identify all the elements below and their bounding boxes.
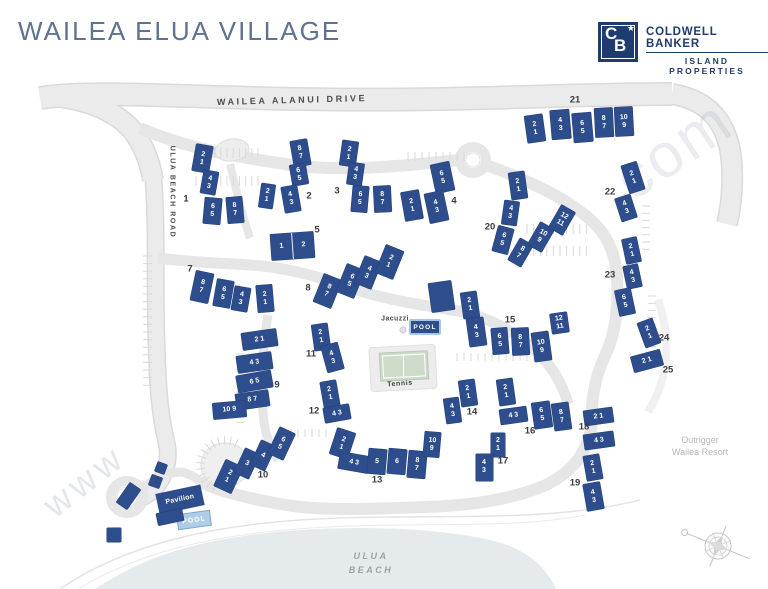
building: 65	[351, 185, 369, 212]
building: 21	[621, 161, 645, 194]
cluster-number: 12	[309, 406, 320, 417]
unit-number: 10	[620, 113, 628, 121]
unit-number: 7	[414, 464, 419, 472]
unit-number: 1	[338, 442, 344, 451]
unit-number: 1	[468, 305, 473, 313]
cluster-number: 25	[663, 365, 674, 376]
road-label-ulua-beach: ULUA BEACH ROAD	[169, 146, 176, 239]
building: 21	[508, 171, 528, 200]
unit-number: 7	[233, 210, 238, 218]
building: 87	[226, 196, 244, 223]
building: 21	[524, 113, 546, 142]
building	[107, 528, 121, 542]
building: 21	[491, 433, 505, 457]
unit-number: 5	[540, 415, 545, 423]
unit-number: 5	[375, 457, 380, 465]
building: 65	[614, 288, 635, 317]
unit-number: 1	[591, 467, 596, 475]
building: 21	[191, 143, 212, 173]
unit-number: 4	[482, 459, 486, 467]
building: 21	[401, 189, 424, 221]
unit-number: 4 3	[508, 410, 519, 419]
unit-number: 1	[384, 261, 391, 270]
map-canvas: WAILEA ALANUI DRIVE ULUA BEACH ROAD Jacu…	[0, 0, 768, 589]
unit-number: 5	[220, 293, 225, 301]
building: 43	[466, 317, 487, 347]
building: 4 3	[338, 451, 370, 473]
cluster-number: 13	[372, 475, 383, 486]
building: 65	[267, 426, 295, 459]
cluster-number: 16	[525, 426, 536, 437]
unit-number: 2	[496, 437, 500, 445]
unit-number: 3	[591, 496, 596, 504]
cluster-number: 15	[505, 315, 516, 326]
building: 109	[614, 106, 633, 136]
unit-number: 8	[415, 456, 420, 464]
jacuzzi-label: Jacuzzi	[381, 316, 409, 323]
unit-number: 1	[199, 158, 204, 166]
unit-number: 5	[345, 280, 352, 289]
cluster-number: 21	[570, 95, 581, 106]
unit-number: 4 3	[332, 408, 343, 417]
unit-number: 3	[630, 276, 635, 284]
unit-number: 8	[380, 191, 384, 199]
unit-number: 8 7	[247, 395, 258, 404]
building: 43	[320, 342, 343, 372]
unit-number: 6	[221, 285, 226, 293]
cluster-number: 4	[451, 196, 456, 207]
unit-number: 5	[209, 211, 214, 219]
unit-number: 5	[499, 239, 505, 248]
building: 43	[582, 481, 603, 511]
building: 21	[583, 453, 603, 480]
neighbor-resort-label: Outrigger Wailea Resort	[672, 434, 728, 458]
building: 109	[531, 330, 552, 361]
unit-number: 2 1	[593, 411, 604, 420]
unit-number: 7	[298, 153, 303, 161]
unit-number: 1	[647, 332, 653, 341]
unit-number: 8	[602, 114, 606, 122]
building: 43	[476, 454, 493, 481]
unit-number: 10	[428, 436, 436, 444]
unit-number: 4	[207, 174, 212, 182]
tennis-label: Tennis	[387, 380, 413, 389]
cluster-number: 17	[498, 456, 509, 467]
unit-number: 11	[555, 322, 563, 331]
cluster-number: 10	[258, 470, 269, 481]
building: 87	[373, 186, 391, 213]
building: 1211	[549, 312, 569, 334]
building: 87	[190, 270, 214, 303]
unit-number: 7	[322, 290, 329, 299]
cluster-number: 7	[187, 264, 192, 275]
beach-name: ULUA BEACH	[349, 549, 394, 578]
unit-number: 9	[622, 121, 626, 129]
cluster-number: 5	[314, 225, 319, 236]
unit-number: 4 3	[249, 357, 260, 366]
unit-number: 1	[629, 250, 634, 258]
unit-number: 5	[276, 442, 283, 451]
cluster-number: 23	[605, 270, 616, 281]
cluster-number: 2	[306, 191, 311, 202]
unit-number: 1	[270, 233, 293, 260]
unit-number: 1	[263, 298, 268, 306]
unit-number: 6	[296, 166, 301, 174]
unit-number: 3	[558, 124, 563, 132]
building: 21	[256, 284, 274, 312]
unit-number: 3	[624, 207, 630, 216]
unit-number: 1	[319, 337, 324, 345]
building: 21	[621, 236, 641, 264]
unit-number: 4	[260, 451, 267, 460]
site-map-page: www .com WAILEA ELUA VILLAGE C B ★ COLDW…	[0, 0, 768, 589]
unit-number: 8	[518, 333, 522, 341]
building: 65	[491, 327, 509, 354]
unit-number: 3	[482, 467, 486, 475]
cluster-number: 22	[605, 187, 616, 198]
unit-number: 6	[579, 119, 584, 127]
unit-number: 1	[496, 445, 500, 453]
building: 87	[594, 107, 613, 137]
building: 43	[549, 109, 570, 140]
building: 109	[423, 431, 441, 457]
unit-number: 1	[533, 128, 538, 136]
unit-number: 3	[450, 410, 455, 418]
cluster-number: 11	[306, 349, 316, 360]
neighbor-line1: Outrigger	[672, 434, 728, 446]
unit-number: 9	[539, 346, 544, 354]
building: 21	[320, 380, 340, 408]
unit-number: 2	[532, 120, 537, 128]
beach-name-line1: ULUA	[349, 549, 394, 563]
cluster-number: 20	[485, 222, 496, 233]
unit-number: 2	[590, 459, 595, 467]
unit-number: 1	[264, 196, 269, 204]
unit-number: 5	[580, 127, 585, 135]
road-label-wailea-alanui: WAILEA ALANUI DRIVE	[217, 93, 367, 107]
building: 65	[202, 197, 221, 224]
main-pool-label: POOL	[409, 319, 441, 335]
cluster-number: 18	[579, 422, 590, 433]
building: 5	[367, 448, 387, 474]
unit-number: 9	[535, 236, 542, 245]
unit-number: 9	[429, 444, 434, 452]
unit-number: 5	[297, 174, 302, 182]
building: 10 9	[212, 401, 246, 420]
building: 43	[615, 194, 638, 222]
building: 65	[430, 161, 455, 193]
unit-number: 6	[395, 457, 400, 465]
building: 21	[460, 291, 479, 319]
unit-number: 7	[518, 341, 522, 349]
unit-number: 1	[516, 185, 521, 193]
cluster-number: 1	[183, 194, 188, 205]
unit-number: 4	[628, 268, 633, 276]
unit-number: 10	[536, 338, 545, 347]
building: 43	[424, 190, 449, 223]
unit-number: 1	[346, 153, 351, 161]
unit-number: 10 9	[222, 405, 236, 414]
unit-number: 2	[515, 177, 520, 185]
building	[428, 280, 455, 312]
unit-number: 4	[590, 488, 595, 496]
building: 2 1	[630, 349, 663, 372]
beach-name-line2: BEACH	[349, 563, 394, 577]
unit-number: 5	[498, 341, 503, 349]
building: 43	[501, 200, 519, 226]
unit-number: 3	[238, 299, 243, 307]
building: 12	[270, 232, 315, 261]
building: 87	[551, 401, 572, 430]
unit-number: 8	[558, 408, 563, 416]
unit-number: 1	[631, 176, 637, 185]
unit-number: 2	[347, 145, 352, 153]
building: 43	[443, 397, 461, 424]
unit-number: 4 3	[349, 457, 360, 466]
unit-number: 3	[330, 356, 336, 365]
building: 65	[289, 162, 308, 185]
building: 21	[458, 379, 477, 407]
unit-number: 1	[223, 475, 230, 484]
unit-number: 2	[262, 290, 267, 298]
building: 21	[637, 318, 661, 348]
building	[148, 474, 162, 488]
building: 6	[387, 448, 407, 474]
building: 43	[200, 169, 219, 194]
unit-number: 7	[198, 287, 203, 295]
unit-number: 3	[352, 174, 357, 182]
unit-number: 6	[438, 169, 443, 177]
unit-number: 1	[504, 392, 509, 400]
unit-number: 4	[449, 402, 454, 410]
unit-number: 5	[357, 199, 362, 207]
building: 87	[511, 327, 529, 355]
building: 43	[231, 286, 251, 312]
building: 2 1	[240, 328, 277, 350]
unit-number: 3	[507, 213, 512, 221]
building: 4 3	[583, 430, 615, 449]
unit-number: 7	[602, 122, 606, 130]
cluster-number: 3	[334, 186, 339, 197]
building: 43	[281, 185, 301, 213]
unit-number: 5	[440, 177, 445, 185]
building: 4 3	[499, 406, 528, 425]
unit-number: 1	[466, 393, 471, 401]
building: 21	[496, 378, 515, 406]
cluster-number: 9	[274, 380, 279, 391]
cluster-number: 19	[570, 478, 581, 489]
unit-number: 7	[559, 416, 564, 424]
unit-number: 3	[474, 332, 479, 340]
neighbor-line2: Wailea Resort	[672, 446, 728, 458]
unit-number: 2	[200, 150, 205, 158]
unit-number: 2 1	[641, 356, 652, 366]
unit-number: 2	[409, 197, 414, 205]
unit-number: 3	[206, 182, 211, 190]
unit-number: 4 3	[594, 435, 605, 444]
building: 65	[571, 112, 592, 143]
unit-number: 3	[289, 199, 294, 207]
cluster-number: 24	[659, 333, 670, 344]
building: 65	[212, 278, 233, 308]
building	[116, 482, 140, 509]
unit-number: 7	[514, 251, 521, 260]
unit-number: 2	[627, 242, 632, 250]
building: 43	[622, 263, 641, 289]
unit-number: 2	[291, 232, 315, 259]
cluster-number: 8	[305, 283, 310, 294]
cluster-number: 14	[467, 407, 478, 418]
unit-number: 6 5	[249, 376, 260, 385]
unit-number: 4	[557, 116, 562, 124]
building: 21	[258, 183, 275, 209]
building: 43	[346, 162, 364, 186]
unit-number: 1	[328, 394, 333, 402]
unit-number: 2 1	[254, 334, 265, 343]
unit-number: 5	[623, 302, 628, 310]
building	[155, 462, 168, 475]
unit-number: 1	[410, 205, 415, 213]
unit-number: 3	[363, 271, 370, 280]
building: 21	[375, 245, 404, 280]
unit-number: 3	[434, 207, 439, 215]
unit-number: 7	[380, 199, 384, 207]
